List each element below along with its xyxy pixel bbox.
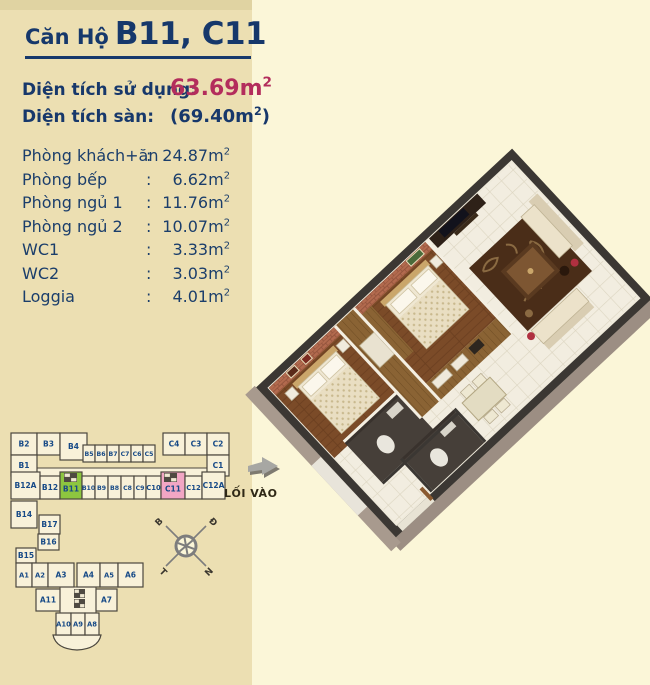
site-unit-B12: B12 bbox=[40, 476, 60, 499]
svg-text:A3: A3 bbox=[55, 571, 66, 580]
site-unit-B14: B14 bbox=[11, 501, 37, 528]
floor-area-value: (69.40m2) bbox=[170, 106, 270, 127]
svg-text:C12A: C12A bbox=[203, 481, 225, 490]
site-unit-B3: B3 bbox=[37, 433, 60, 455]
svg-text:B4: B4 bbox=[68, 442, 79, 451]
svg-text:C1: C1 bbox=[213, 461, 224, 470]
room-area-list: Phòng khách+ăn:24.87m2Phòng bếp:6.62m2Ph… bbox=[22, 146, 230, 311]
svg-text:B6: B6 bbox=[96, 451, 105, 458]
svg-text:A8: A8 bbox=[87, 621, 97, 629]
site-unit-C8: C8 bbox=[121, 476, 134, 499]
svg-text:A4: A4 bbox=[83, 571, 94, 580]
svg-text:B8: B8 bbox=[110, 485, 119, 492]
room-value: 3.33m2 bbox=[156, 240, 230, 259]
room-name: Loggia bbox=[22, 287, 146, 306]
room-name: Phòng ngủ 1 bbox=[22, 193, 146, 212]
svg-text:A10: A10 bbox=[56, 621, 71, 629]
site-unit-B5: B5 bbox=[83, 445, 95, 462]
svg-text:C11: C11 bbox=[165, 485, 181, 494]
site-unit-A7: A7 bbox=[96, 589, 117, 611]
svg-text:A11: A11 bbox=[40, 596, 56, 605]
site-unit-A9: A9 bbox=[71, 613, 85, 635]
page-title: Căn HộB11, C11 bbox=[25, 16, 251, 59]
site-unit-C12: C12 bbox=[185, 476, 202, 499]
elevator-shaft-icon bbox=[74, 599, 85, 608]
site-unit-B12A: B12A bbox=[11, 472, 40, 499]
svg-text:A2: A2 bbox=[35, 572, 45, 580]
site-unit-A1: A1 bbox=[16, 563, 32, 587]
top-strip bbox=[0, 0, 252, 10]
apartment-3d-render bbox=[244, 128, 650, 573]
compass-letter-T: T bbox=[157, 567, 169, 579]
svg-text:B3: B3 bbox=[43, 440, 54, 449]
svg-text:B16: B16 bbox=[40, 538, 56, 547]
svg-text:A9: A9 bbox=[73, 621, 83, 629]
site-unit-A3: A3 bbox=[48, 563, 74, 587]
site-unit-B2: B2 bbox=[11, 433, 37, 455]
building-curved-base bbox=[53, 635, 101, 650]
room-area-row: Phòng khách+ăn:24.87m2 bbox=[22, 146, 230, 170]
room-name: Phòng ngủ 2 bbox=[22, 217, 146, 236]
site-unit-C4: C4 bbox=[163, 433, 185, 455]
site-unit-B16: B16 bbox=[38, 534, 59, 550]
room-name: Phòng bếp bbox=[22, 170, 146, 189]
usage-area-value: 63.69m2 bbox=[170, 76, 272, 101]
svg-text:B11: B11 bbox=[63, 485, 79, 494]
floor-area-line: Diện tích sàn:(69.40m2) bbox=[22, 106, 244, 127]
site-unit-A5: A5 bbox=[100, 563, 118, 587]
compass-rose: BĐTN bbox=[154, 516, 219, 579]
svg-text:A6: A6 bbox=[125, 571, 136, 580]
area-summary: Diện tích sử dụng:63.69m2 Diện tích sàn:… bbox=[22, 76, 244, 132]
room-value: 3.03m2 bbox=[156, 264, 230, 283]
svg-text:B9: B9 bbox=[97, 485, 106, 492]
site-unit-C3: C3 bbox=[185, 433, 207, 455]
site-unit-A4: A4 bbox=[77, 563, 100, 587]
room-colon: : bbox=[146, 193, 156, 212]
site-unit-A6: A6 bbox=[118, 563, 143, 587]
site-unit-C9: C9 bbox=[134, 476, 146, 499]
svg-text:A1: A1 bbox=[19, 572, 29, 580]
floorplan-page: { "page": { "bg_left": "#ecdfb2", "bg_ri… bbox=[0, 0, 650, 685]
svg-text:B15: B15 bbox=[18, 551, 34, 560]
svg-text:C7: C7 bbox=[121, 451, 130, 458]
room-colon: : bbox=[146, 217, 156, 236]
svg-text:B17: B17 bbox=[41, 520, 57, 529]
room-value: 4.01m2 bbox=[156, 287, 230, 306]
room-colon: : bbox=[146, 146, 156, 165]
svg-text:A5: A5 bbox=[104, 572, 114, 580]
elevator-shaft-icon bbox=[164, 473, 177, 482]
svg-text:C10: C10 bbox=[146, 484, 161, 492]
room-colon: : bbox=[146, 264, 156, 283]
room-name: Phòng khách+ăn bbox=[22, 146, 146, 165]
room-area-row: Phòng ngủ 2:10.07m2 bbox=[22, 217, 230, 241]
svg-text:C9: C9 bbox=[136, 485, 145, 492]
title-prefix: Căn Hộ bbox=[25, 25, 109, 49]
room-name: WC2 bbox=[22, 264, 146, 283]
room-value: 11.76m2 bbox=[156, 193, 230, 212]
room-colon: : bbox=[146, 240, 156, 259]
compass-letter-Đ: Đ bbox=[206, 516, 219, 529]
site-unit-C7: C7 bbox=[119, 445, 131, 462]
room-value: 6.62m2 bbox=[156, 170, 230, 189]
usage-area-line: Diện tích sử dụng:63.69m2 bbox=[22, 76, 244, 101]
title-unit-codes: B11, C11 bbox=[115, 16, 266, 52]
room-area-row: WC1:3.33m2 bbox=[22, 240, 230, 264]
compass-letter-B: B bbox=[154, 517, 166, 529]
site-unit-B6: B6 bbox=[95, 445, 107, 462]
room-area-row: Phòng ngủ 1:11.76m2 bbox=[22, 193, 230, 217]
elevator-shaft-icon bbox=[64, 473, 77, 482]
site-unit-B15: B15 bbox=[16, 548, 36, 563]
site-unit-C10: C10 bbox=[146, 476, 161, 499]
svg-text:C4: C4 bbox=[169, 440, 180, 449]
elevator-shaft-icon bbox=[74, 589, 85, 598]
site-unit-B8: B8 bbox=[108, 476, 121, 499]
site-unit-B10: B10 bbox=[82, 476, 96, 499]
site-unit-A11: A11 bbox=[36, 589, 60, 611]
site-unit-B9: B9 bbox=[95, 476, 108, 499]
svg-text:B12A: B12A bbox=[15, 481, 37, 490]
svg-text:B10: B10 bbox=[82, 485, 96, 492]
svg-text:B7: B7 bbox=[108, 451, 117, 458]
site-unit-B17: B17 bbox=[39, 515, 60, 534]
svg-text:C12: C12 bbox=[186, 484, 201, 492]
room-value: 24.87m2 bbox=[156, 146, 230, 165]
site-unit-C12A: C12A bbox=[202, 472, 225, 499]
site-unit-A2: A2 bbox=[32, 563, 48, 587]
room-value: 10.07m2 bbox=[156, 217, 230, 236]
floor-area-label: Diện tích sàn: bbox=[22, 107, 170, 127]
svg-text:C5: C5 bbox=[145, 451, 154, 458]
svg-text:C8: C8 bbox=[123, 485, 132, 492]
svg-text:A7: A7 bbox=[101, 596, 112, 605]
site-unit-A10: A10 bbox=[56, 613, 71, 635]
svg-text:C3: C3 bbox=[191, 440, 202, 449]
site-unit-B7: B7 bbox=[107, 445, 119, 462]
room-area-row: Phòng bếp:6.62m2 bbox=[22, 170, 230, 194]
room-colon: : bbox=[146, 287, 156, 306]
site-unit-A8: A8 bbox=[85, 613, 99, 635]
svg-text:C6: C6 bbox=[133, 451, 142, 458]
room-area-row: WC2:3.03m2 bbox=[22, 264, 230, 288]
svg-text:B5: B5 bbox=[84, 451, 93, 458]
svg-text:B14: B14 bbox=[16, 510, 32, 519]
site-unit-C2: C2 bbox=[207, 433, 229, 455]
compass-letter-N: N bbox=[203, 566, 215, 578]
svg-text:B12: B12 bbox=[42, 483, 58, 492]
site-unit-C5: C5 bbox=[143, 445, 155, 462]
svg-text:B1: B1 bbox=[19, 461, 30, 470]
svg-text:C2: C2 bbox=[213, 440, 224, 449]
room-name: WC1 bbox=[22, 240, 146, 259]
room-colon: : bbox=[146, 170, 156, 189]
svg-text:B2: B2 bbox=[19, 440, 30, 449]
room-area-row: Loggia:4.01m2 bbox=[22, 287, 230, 311]
usage-area-label: Diện tích sử dụng: bbox=[22, 80, 170, 100]
site-unit-C6: C6 bbox=[131, 445, 143, 462]
